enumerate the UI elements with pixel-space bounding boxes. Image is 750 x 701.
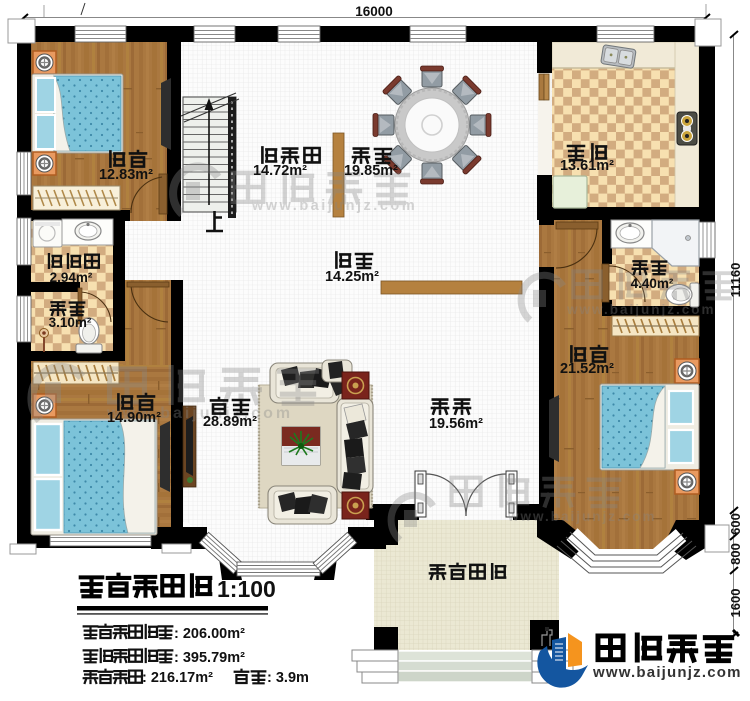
svg-text:19.56m²: 19.56m²: [429, 416, 483, 432]
svg-text:www.baijunjz.com: www.baijunjz.com: [566, 302, 716, 317]
svg-text:www.baijunjz.com: www.baijunjz.com: [507, 509, 657, 524]
svg-text:14.25m²: 14.25m²: [325, 269, 379, 285]
svg-text:800: 800: [728, 543, 743, 565]
svg-text:16000: 16000: [355, 4, 393, 19]
svg-text:www.baijunjz.com: www.baijunjz.com: [251, 198, 417, 214]
svg-text:600: 600: [728, 513, 743, 535]
svg-text:14.72m²: 14.72m²: [253, 163, 307, 179]
svg-text:28.89m²: 28.89m²: [203, 414, 257, 430]
svg-text:12.83m²: 12.83m²: [99, 167, 153, 183]
svg-text:1:100: 1:100: [217, 576, 276, 602]
svg-text:: 216.17m²: : 216.17m²: [142, 670, 213, 686]
svg-text:19.85m²: 19.85m²: [344, 163, 398, 179]
svg-text:21.52m²: 21.52m²: [560, 361, 614, 377]
svg-text:: 3.9m: : 3.9m: [267, 670, 309, 686]
svg-text:: 206.00m²: : 206.00m²: [174, 626, 245, 642]
svg-text:: 395.79m²: : 395.79m²: [174, 650, 245, 666]
svg-text:11160: 11160: [728, 263, 743, 298]
svg-text:14.90m²: 14.90m²: [107, 410, 161, 426]
svg-text:4.40m²: 4.40m²: [631, 276, 674, 291]
svg-text:www.baijunjz.com: www.baijunjz.com: [592, 664, 742, 681]
svg-text:2.94m²: 2.94m²: [50, 270, 93, 285]
svg-text:13.61m²: 13.61m²: [560, 158, 614, 174]
svg-text:3.10m²: 3.10m²: [49, 315, 92, 330]
svg-text:1600: 1600: [728, 589, 743, 618]
